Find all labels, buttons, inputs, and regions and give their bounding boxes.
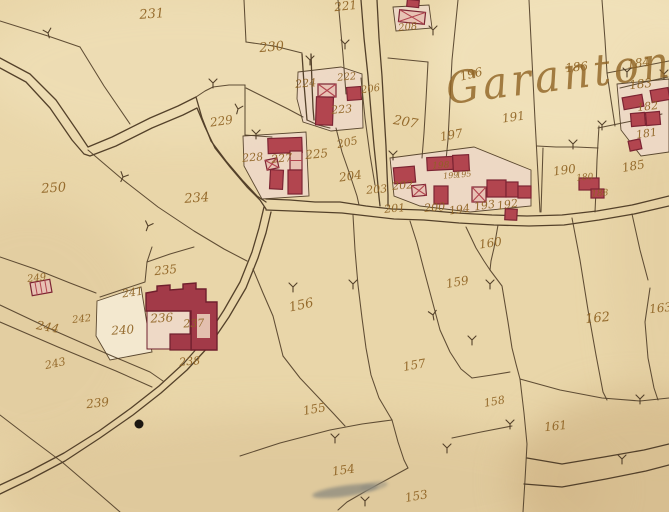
map-canvas: 2312212082302242222062231961861841831821… — [0, 0, 669, 512]
parcel-label-221: 221 — [332, 0, 357, 14]
parcel-label-236: 236 — [149, 310, 174, 325]
parcel-label-235: 235 — [152, 262, 177, 278]
parcel-label-234: 234 — [183, 190, 210, 207]
farm-complex-wing — [170, 334, 191, 350]
parcel-label-161: 161 — [543, 418, 567, 434]
building-outline — [630, 112, 645, 126]
parcel-label-223: 223 — [330, 102, 353, 117]
parcel-label-208: 208 — [397, 21, 418, 34]
building-solid — [630, 112, 645, 126]
black-dot-mark — [135, 420, 144, 429]
parcel-label-249: 249 — [26, 272, 48, 285]
parcel-label-200: 200 — [423, 200, 446, 215]
building-outline — [270, 170, 284, 190]
building-solid — [645, 111, 660, 125]
cadastral-map-scan: 2312212082302242222062231961861841831821… — [0, 0, 669, 512]
parcel-label-198: 198 — [432, 161, 450, 172]
parcel-label-225: 225 — [304, 146, 329, 162]
parcel-label-182: 182 — [637, 99, 659, 114]
building-solid — [487, 180, 506, 197]
parcel-label-188: 188 — [591, 188, 609, 199]
parcel-label-222: 222 — [336, 71, 357, 84]
building-outline — [407, 0, 420, 8]
building-solid — [518, 186, 531, 198]
parcel-label-195: 195 — [456, 169, 472, 179]
parcel-label-240: 240 — [110, 322, 135, 338]
parcel-label-228: 228 — [241, 150, 264, 165]
building-outline — [518, 186, 531, 198]
building-outline — [288, 170, 302, 194]
parcel-label-180: 180 — [576, 172, 594, 183]
parcel-label-203: 203 — [365, 182, 388, 197]
building-solid — [506, 182, 518, 197]
building-outline — [347, 87, 362, 101]
parcel-label-237: 237 — [182, 316, 205, 330]
building-outline — [645, 111, 660, 125]
parcel-label-231: 231 — [138, 6, 165, 23]
building-solid — [270, 170, 284, 190]
parcel-label-239: 239 — [84, 395, 110, 411]
parcel-label-162: 162 — [585, 310, 611, 328]
parcel-label-227: 227 — [270, 151, 293, 166]
building-xhatch — [318, 84, 336, 97]
building-xhatch — [412, 184, 427, 196]
building-outline — [487, 180, 506, 197]
parcel-label-201: 201 — [383, 201, 406, 216]
parcel-label-163: 163 — [648, 300, 669, 316]
building-solid — [347, 87, 362, 101]
building-solid — [288, 170, 302, 194]
parcel-label-238: 238 — [178, 354, 201, 369]
building-solid — [407, 0, 420, 8]
parcel-label-230: 230 — [258, 39, 285, 56]
parcel-label-242: 242 — [71, 313, 92, 326]
parcel-label-224: 224 — [294, 76, 317, 91]
parcel-label-250: 250 — [40, 180, 67, 197]
parcel-label-202: 202 — [391, 178, 414, 193]
building-outline — [506, 182, 518, 197]
